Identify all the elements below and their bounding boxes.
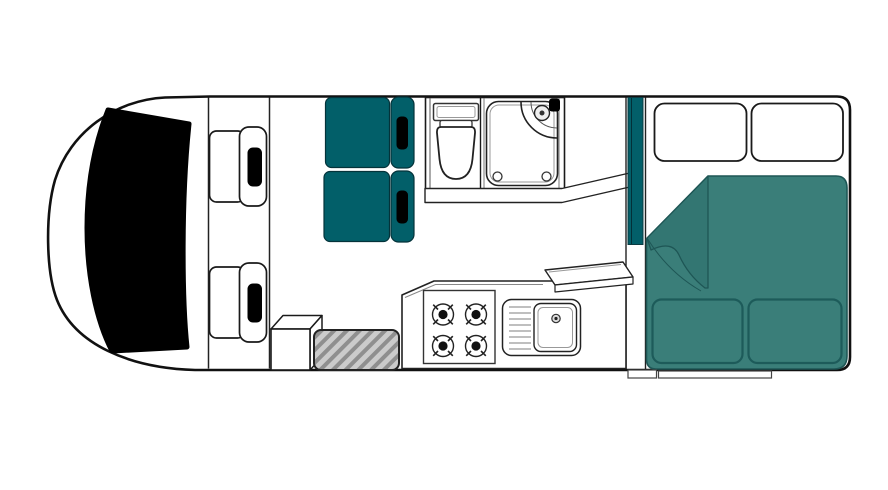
stove-4-burner xyxy=(424,291,496,364)
motorhome-floorplan xyxy=(0,0,888,490)
bed-cushion-right xyxy=(749,300,842,364)
dinette-headrest-rear xyxy=(397,191,409,224)
bathroom xyxy=(426,98,565,191)
bed-cushion-left xyxy=(653,300,743,364)
overhead-locker-right xyxy=(752,104,844,162)
entry-step-small xyxy=(628,370,657,378)
passenger-headrest xyxy=(248,284,263,323)
driver-seat xyxy=(210,127,267,206)
dinette-headrest-front xyxy=(397,117,409,150)
dinette-seat-rear xyxy=(324,171,414,242)
overhead-locker-left xyxy=(655,104,747,162)
entry-step-wide xyxy=(659,371,772,378)
dinette-seat-front xyxy=(326,97,415,168)
driver-headrest xyxy=(248,148,263,187)
entry-mat xyxy=(314,330,399,370)
sink-with-drainer xyxy=(503,300,581,356)
windshield xyxy=(87,110,189,351)
floorplan-canvas xyxy=(0,0,888,490)
passenger-seat xyxy=(210,263,267,342)
